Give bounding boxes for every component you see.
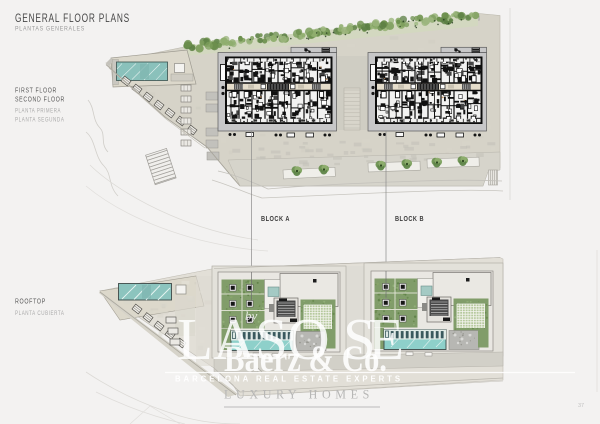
svg-text:PLANTA PRIMERA: PLANTA PRIMERA bbox=[15, 108, 61, 115]
svg-text:PLANTAS GENERALES: PLANTAS GENERALES bbox=[15, 26, 85, 33]
svg-text:SECOND FLOOR: SECOND FLOOR bbox=[15, 97, 65, 104]
svg-text:PLANTA SEGUNDA: PLANTA SEGUNDA bbox=[15, 117, 65, 124]
svg-text:PLANTA CUBIERTA: PLANTA CUBIERTA bbox=[15, 310, 65, 317]
svg-text:L: L bbox=[177, 306, 213, 372]
svg-text:BLOCK A: BLOCK A bbox=[261, 216, 290, 223]
svg-text:BLOCK B: BLOCK B bbox=[395, 216, 424, 223]
svg-text:LUXURY HOMES: LUXURY HOMES bbox=[224, 387, 374, 402]
svg-text:BARCELONA REAL ESTATE EXPERTS: BARCELONA REAL ESTATE EXPERTS bbox=[175, 375, 403, 384]
svg-text:by: by bbox=[245, 308, 258, 323]
svg-text:ROOFTOP: ROOFTOP bbox=[15, 299, 46, 306]
svg-text:37: 37 bbox=[578, 403, 584, 409]
svg-text:FIRST FLOOR: FIRST FLOOR bbox=[15, 88, 57, 95]
svg-text:GENERAL FLOOR PLANS: GENERAL FLOOR PLANS bbox=[15, 13, 130, 25]
